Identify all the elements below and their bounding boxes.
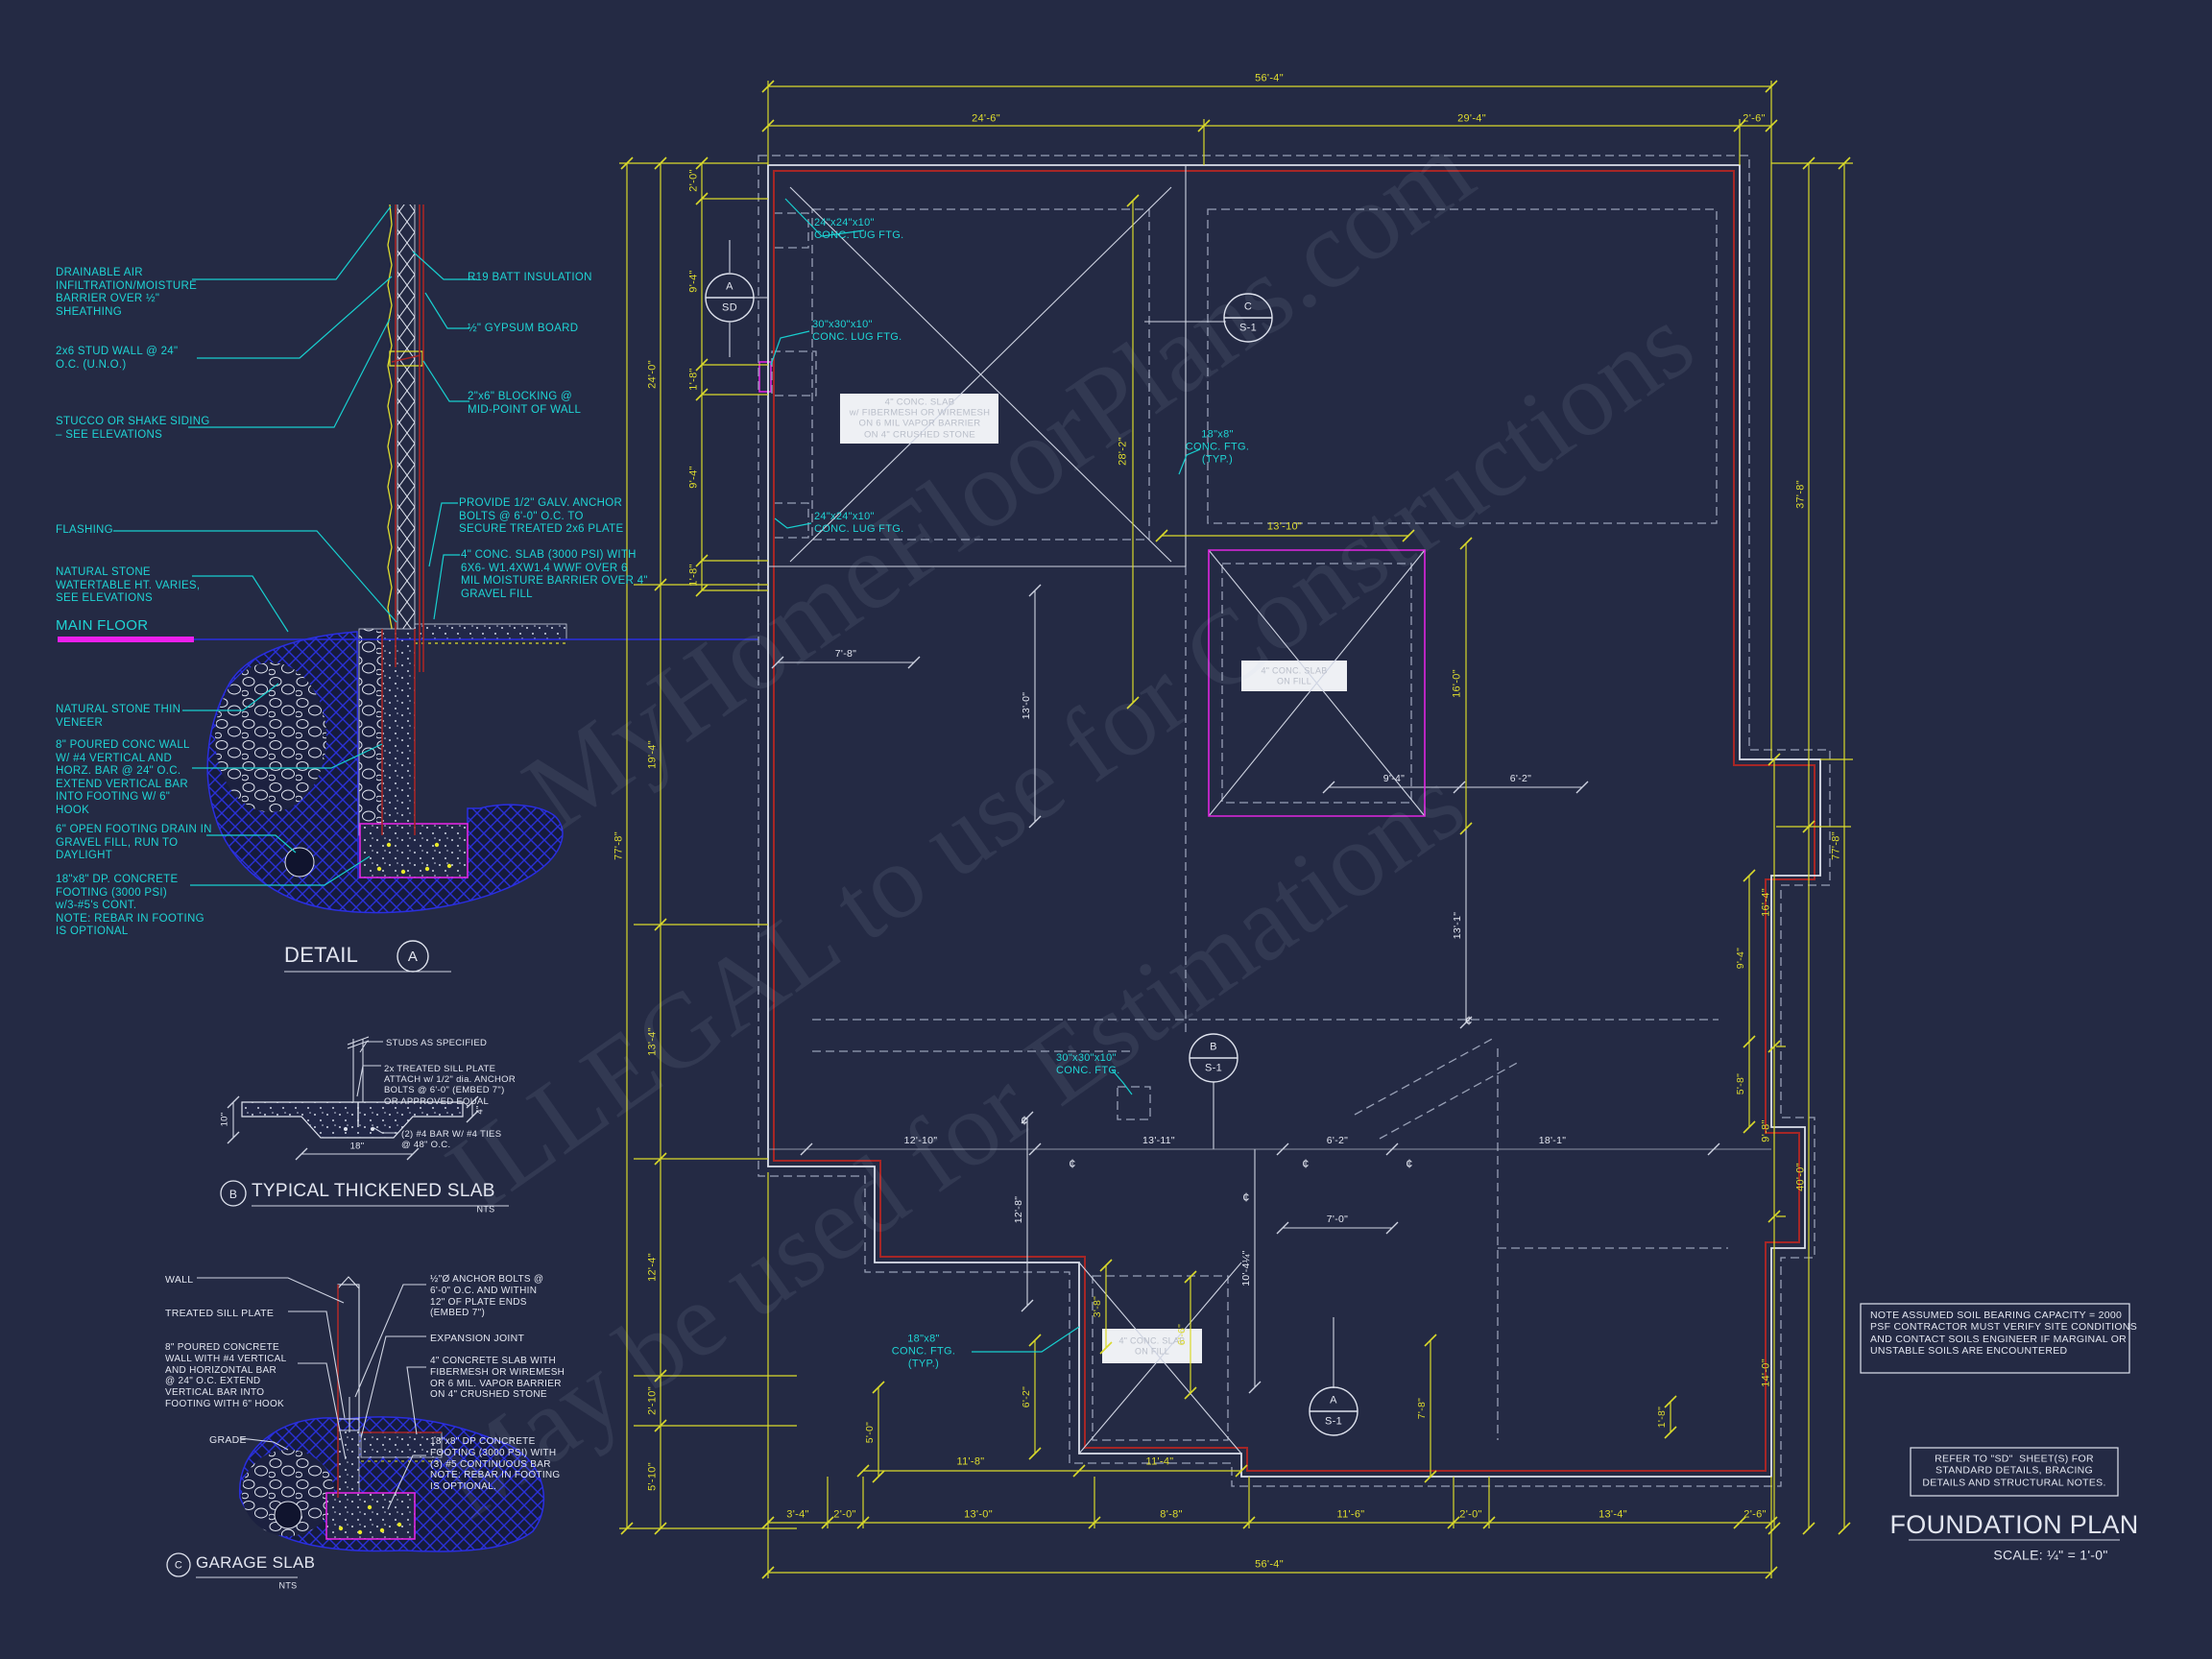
callout: DRAINABLE AIR INFILTRATION/MOISTURE BARR…: [56, 267, 197, 319]
callout: 6" OPEN FOOTING DRAIN IN GRAVEL FILL, RU…: [56, 824, 212, 863]
detail-c-title: GARAGE SLAB: [196, 1553, 315, 1573]
dim: 14'-0": [1761, 1358, 1773, 1387]
dim: 1'-8": [1656, 1407, 1668, 1428]
dim: 28'-2": [1118, 437, 1130, 466]
dim: 11'-4": [1145, 1456, 1173, 1469]
footing-callout: 24"x24"x10" CONC. LUG FTG.: [814, 217, 903, 242]
dim: 16'-4": [1761, 888, 1773, 917]
footing-callout: 18"x8" CONC. FTG. (TYP.): [892, 1334, 956, 1371]
callout: 8" POURED CONC WALL W/ #4 VERTICAL AND H…: [56, 739, 190, 817]
detail-a-title: DETAIL: [284, 943, 358, 968]
dim: 77'-8": [613, 831, 626, 860]
section-bubble: S-1: [1239, 323, 1257, 335]
watermark-line: ILLEGAL to use for Constructions: [424, 280, 1716, 1237]
callout: R19 BATT INSULATION: [468, 272, 592, 285]
dim: 77'-8": [1831, 831, 1843, 860]
centerline-symbol: ¢: [1406, 1156, 1413, 1170]
dim: 56'-4": [1255, 73, 1284, 85]
section-bubble: C: [1244, 301, 1252, 314]
dim: 18": [350, 1141, 365, 1151]
dim: 7'-8": [1416, 1398, 1428, 1419]
sheet-scale: SCALE: ¼" = 1'-0": [1993, 1548, 2107, 1564]
callout: NATURAL STONE WATERTABLE HT. VARIES, SEE…: [56, 566, 200, 606]
dim: 9'-4": [1383, 773, 1405, 784]
dim: 18'-1": [1539, 1135, 1567, 1146]
dim: 8'-8": [1160, 1509, 1182, 1522]
callout: 4" CONC. SLAB (3000 PSI) WITH 6X6- W1.4X…: [461, 549, 648, 601]
centerline-symbol: ¢: [1021, 1113, 1028, 1127]
dim: 16'-0": [1452, 669, 1464, 698]
callout: ½" GYPSUM BOARD: [468, 323, 578, 336]
centerline-symbol: ¢: [1465, 1013, 1473, 1027]
dim: 6'-2": [1510, 773, 1531, 784]
dim: 10'-4¼": [1240, 1250, 1252, 1286]
dim: 12'-10": [904, 1135, 938, 1146]
dim: 6'-2": [1021, 1386, 1032, 1407]
callout: FLASHING: [56, 524, 113, 538]
callout: GRADE: [209, 1434, 247, 1446]
centerline-symbol: ¢: [1242, 1190, 1250, 1204]
centerline-symbol: ¢: [1302, 1156, 1310, 1170]
dim: 11'-8": [956, 1456, 984, 1469]
callout: (2) #4 BAR W/ #4 TIES @ 48" O.C.: [401, 1129, 501, 1150]
dim: 9'-4": [688, 270, 701, 292]
callout: PROVIDE 1/2" GALV. ANCHOR BOLTS @ 6'-0" …: [459, 497, 623, 537]
main-floor-label: MAIN FLOOR: [56, 617, 148, 635]
dim: 2'-10": [647, 1386, 660, 1415]
footing-callout: 24"x24"x10" CONC. LUG FTG.: [814, 511, 903, 536]
dim: 1'-8": [688, 368, 701, 390]
dim: 56'-4": [1255, 1559, 1284, 1572]
dim: 12'-8": [1013, 1196, 1024, 1224]
footing-callout: 30"x30"x10" CONC. LUG FTG.: [812, 319, 902, 344]
dim: 9'-8": [1761, 1119, 1773, 1142]
dim: 10": [219, 1113, 229, 1127]
callout: 8" POURED CONCRETE WALL WITH #4 VERTICAL…: [165, 1342, 287, 1410]
slab-note: 4" CONC. SLAB w/ FIBERMESH OR WIREMESH O…: [850, 397, 991, 441]
dim: 40'-0": [1795, 1163, 1808, 1191]
callout: 2"x6" BLOCKING @ MID-POINT OF WALL: [468, 391, 581, 417]
blueprint-sheet: FOUNDATION PLANSCALE: ¼" = 1'-0"NOTE ASS…: [0, 0, 2212, 1659]
callout: 18"x8" DP. CONCRETE FOOTING (3000 PSI) w…: [56, 874, 204, 939]
dim: 24'-0": [647, 360, 660, 389]
callout: TREATED SILL PLATE: [165, 1308, 274, 1319]
dim: 13'-11": [1142, 1135, 1175, 1146]
labels-layer: FOUNDATION PLANSCALE: ¼" = 1'-0"NOTE ASS…: [0, 0, 2212, 1659]
detail-a-bubble: A: [408, 949, 418, 966]
dim: 37'-8": [1795, 480, 1808, 509]
dim: 4": [474, 1105, 485, 1114]
dim: 9'-4": [688, 466, 701, 488]
section-bubble: SD: [722, 302, 737, 315]
dim: 6'-6": [1176, 1324, 1188, 1345]
callout: EXPANSION JOINT: [430, 1333, 524, 1344]
footing-callout: 30"x30"x10" CONC. FTG.: [1056, 1052, 1120, 1077]
callout: STUCCO OR SHAKE SIDING – SEE ELEVATIONS: [56, 416, 210, 442]
callout: NATURAL STONE THIN VENEER: [56, 704, 180, 730]
dim: 7'-8": [835, 648, 856, 660]
detail-b-title: TYPICAL THICKENED SLAB: [252, 1181, 495, 1202]
footing-callout: 18"x8" CONC. FTG. (TYP.): [1186, 429, 1250, 467]
dim: 29'-4": [1457, 113, 1486, 126]
dim: 24'-6": [972, 113, 1000, 126]
soil-note: NOTE ASSUMED SOIL BEARING CAPACITY = 200…: [1870, 1310, 2137, 1358]
callout: 2x6 STUD WALL @ 24" O.C. (U.N.O.): [56, 346, 178, 372]
nts-label: NTS: [279, 1581, 298, 1592]
slab-note: 4" CONC. SLAB ON FILL: [1261, 665, 1327, 685]
dim: 13'-4": [1599, 1509, 1627, 1522]
dim: 13'-4": [647, 1027, 660, 1056]
dim: 3'-4": [786, 1509, 808, 1522]
sheet-title: FOUNDATION PLAN: [1889, 1510, 2138, 1541]
dim: 2'-0": [688, 169, 701, 191]
callout: 4" CONCRETE SLAB WITH FIBERMESH OR WIREM…: [430, 1356, 565, 1401]
dim: 7'-0": [1327, 1214, 1348, 1225]
dim: 19'-4": [647, 740, 660, 769]
dim: 2'-6": [1743, 1509, 1766, 1522]
dim: 11'-6": [1336, 1509, 1364, 1522]
dim: 2'-0": [1459, 1509, 1481, 1522]
section-bubble: A: [1330, 1395, 1337, 1407]
callout: 2x TREATED SILL PLATE ATTACH w/ 1/2" dia…: [384, 1064, 516, 1107]
dim: 13'-0": [964, 1509, 993, 1522]
callout: 18"x8" DP CONCRETE FOOTING (3000 PSI) WI…: [430, 1436, 561, 1493]
section-bubble: S-1: [1325, 1416, 1342, 1429]
dim: 6'-2": [1327, 1135, 1348, 1146]
centerline-symbol: ¢: [1069, 1156, 1076, 1170]
dim: 13'-1": [1452, 912, 1463, 940]
callout: WALL: [165, 1274, 193, 1286]
callout: ½"Ø ANCHOR BOLTS @ 6'-0" O.C. AND WITHIN…: [430, 1274, 543, 1319]
dim: 2'-6": [1743, 113, 1765, 126]
nts-label: NTS: [477, 1205, 495, 1215]
dim: 1'-8": [688, 564, 701, 586]
dim: 3'-8": [1092, 1296, 1103, 1317]
dim: 5'-10": [647, 1462, 660, 1491]
callout: STUDS AS SPECIFIED: [386, 1038, 487, 1048]
sd-note: REFER TO "SD" SHEET(S) FOR STANDARD DETA…: [1922, 1453, 2105, 1488]
dim: 12'-4": [647, 1253, 660, 1282]
dim: 5'-0": [864, 1422, 876, 1443]
dim: 13'-10": [1267, 521, 1302, 534]
section-bubble: B: [1210, 1042, 1217, 1054]
detail-b-bubble: B: [229, 1188, 237, 1201]
section-bubble: S-1: [1205, 1063, 1222, 1075]
detail-c-bubble: C: [175, 1560, 182, 1573]
dim: 13'-0": [1021, 692, 1032, 720]
dim: 5'-8": [1735, 1073, 1746, 1094]
dim: 2'-0": [833, 1509, 855, 1522]
dim: 9'-4": [1735, 948, 1746, 969]
section-bubble: A: [726, 281, 733, 294]
